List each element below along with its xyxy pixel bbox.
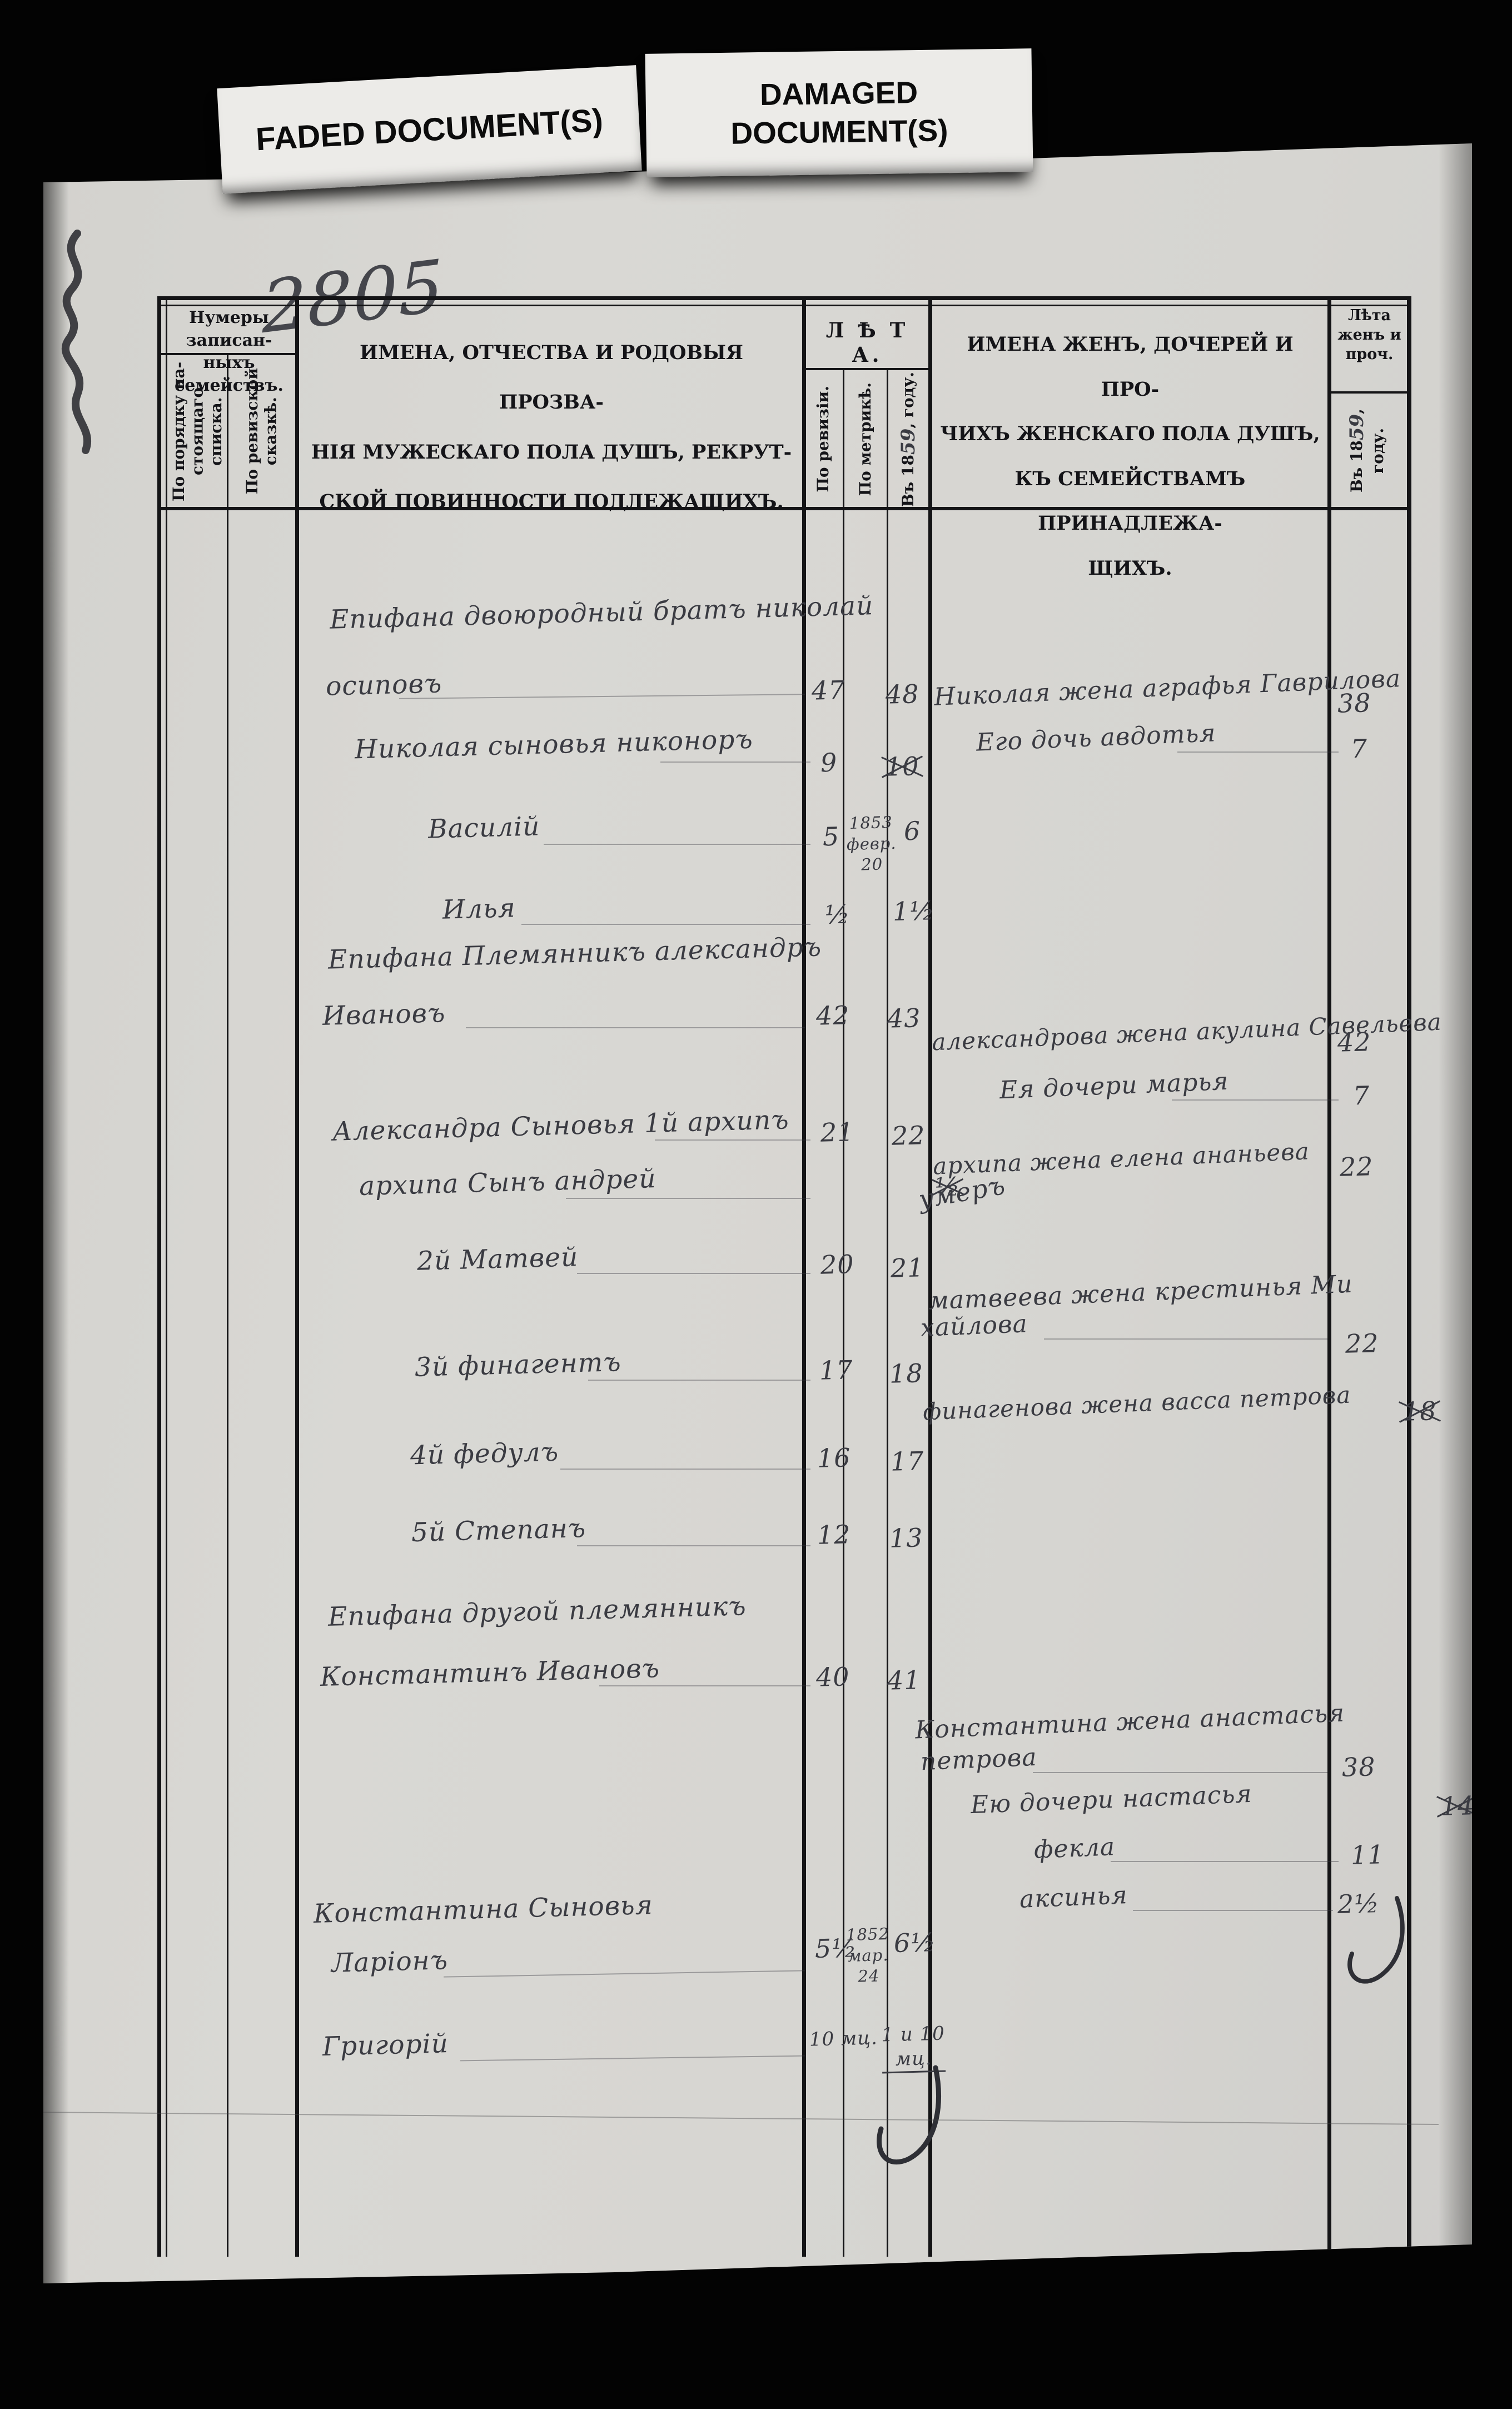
female-entry-name: хайлова xyxy=(920,1310,1028,1342)
female-in-year-handwritten: 59 xyxy=(1346,414,1368,440)
male-entry-name: Василій xyxy=(427,811,540,844)
ink-flourish xyxy=(1344,1895,1411,1995)
male-entry-name: 5й Степанъ xyxy=(411,1513,586,1548)
female-entry-name: фекла xyxy=(1033,1833,1116,1864)
ink-blot-mark xyxy=(47,228,108,467)
scan-background: 2805 Нумеры записан- ныхъ семействъ. По … xyxy=(0,0,1512,2409)
male-entry-name: Епифана двоюродный братъ николай xyxy=(329,590,874,635)
document-page: 2805 Нумеры записан- ныхъ семействъ. По … xyxy=(43,139,1472,2284)
leader-line xyxy=(1111,1861,1339,1862)
age-in-year: 6½ xyxy=(893,1927,936,1958)
female-age: 22 xyxy=(1345,1328,1379,1359)
male-entry-name: архипа Сынъ андрей xyxy=(359,1163,656,1202)
column-line-revision-right xyxy=(843,368,844,2257)
header-male-title: ИМЕНА, ОТЧЕСТВА И РОДОВЫЯ ПРОЗВА- НІЯ МУ… xyxy=(305,328,798,526)
male-entry-name: Николая сыновья никоноръ xyxy=(354,724,753,765)
male-entry-name: Константинъ Ивановъ xyxy=(320,1653,660,1693)
female-age: 38 xyxy=(1337,688,1371,719)
header-by-metrics: По метрикѣ. xyxy=(844,371,887,507)
female-age: 38 xyxy=(1341,1751,1376,1783)
header-by-current-list-label: По порядку на- стоящаго списка. xyxy=(170,356,226,507)
damaged-document-label: DAMAGED DOCUMENT(S) xyxy=(730,73,948,153)
leader-line xyxy=(466,1027,805,1028)
header-female-in-year-label: Въ 1859, году. xyxy=(1346,395,1387,507)
age-in-year: 18 xyxy=(889,1358,923,1389)
leader-line xyxy=(566,1198,810,1199)
male-entry-name: осиповъ xyxy=(325,668,442,701)
leader-line xyxy=(399,694,805,699)
header-female-in-year: Въ 1859, году. xyxy=(1339,395,1394,507)
header-by-current-list: По порядку на- стоящаго списка. xyxy=(168,356,227,507)
leader-line xyxy=(660,761,810,763)
female-age: 11 xyxy=(1350,1839,1385,1870)
female-entry-name: матвеева жена крестинья Ми xyxy=(928,1270,1353,1316)
header-by-revision-tale: По ревизской сказкѣ. xyxy=(228,356,295,507)
header-female-title: ИМЕНА ЖЕНЪ, ДОЧЕРЕЙ И ПРО- ЧИХЪ ЖЕНСКАГО… xyxy=(938,322,1322,591)
leader-line xyxy=(1044,1338,1327,1340)
male-entry-name: 2й Матвей xyxy=(416,1242,579,1277)
leader-line xyxy=(1177,751,1339,753)
age-by-revision: 9 xyxy=(820,748,838,778)
female-age: 42 xyxy=(1337,1027,1371,1058)
age-in-year: 1½ xyxy=(892,895,935,927)
leader-line xyxy=(1033,1772,1327,1773)
age-by-revision: 17 xyxy=(819,1355,853,1386)
age-in-year: 41 xyxy=(887,1665,921,1696)
header-female-years: Лѣта женъ и проч. xyxy=(1330,306,1409,364)
female-entry-name: петрова xyxy=(920,1743,1037,1776)
damaged-document-slip: DAMAGED DOCUMENT(S) xyxy=(645,48,1033,177)
in-year-handwritten: 59 xyxy=(897,428,919,454)
age-by-revision: 5 xyxy=(822,822,840,852)
column-line-years-right xyxy=(928,296,932,2257)
age-by-revision: 40 xyxy=(815,1661,850,1693)
female-entry-name: финагенова жена васса петрова xyxy=(922,1381,1351,1426)
age-in-year: 21 xyxy=(890,1252,924,1283)
header-years-title: Л Ѣ Т А. xyxy=(806,318,928,367)
in-year-prefix: Въ 18 xyxy=(899,455,917,507)
years-header-split-line xyxy=(802,368,932,370)
male-entry-name: 4й федулъ xyxy=(410,1437,559,1471)
table-top-border-inner xyxy=(157,305,1409,306)
female-entry-name: аксинья xyxy=(1019,1881,1128,1914)
age-in-year: 6 xyxy=(903,816,921,847)
leader-line xyxy=(444,1970,805,1977)
leader-line xyxy=(599,1685,810,1686)
age-by-metric: 1852 мар. 24 xyxy=(846,1924,891,1988)
leader-line xyxy=(577,1545,810,1546)
header-in-year-label: Въ 1859, году. xyxy=(897,372,920,507)
female-entry-name: Ею дочери настасья xyxy=(970,1780,1252,1819)
table-top-border xyxy=(157,296,1409,300)
in-year-suffix: , году. xyxy=(899,372,917,429)
age-by-revision: 42 xyxy=(815,1000,850,1031)
column-line-numbers-right xyxy=(295,296,299,2257)
leader-line xyxy=(655,1139,810,1141)
male-entry-name: Епифана другой племянникъ xyxy=(327,1591,747,1632)
age-by-revision: 12 xyxy=(817,1519,851,1550)
male-entry-name: Илья xyxy=(442,893,516,925)
age-by-revision: 21 xyxy=(820,1117,854,1148)
male-entry-name: Епифана Племянникъ александръ xyxy=(327,932,822,975)
female-years-split-line xyxy=(1327,391,1411,394)
age-in-year: 22 xyxy=(891,1120,926,1151)
table-left-border xyxy=(157,296,161,2257)
female-entry-name: Константина жена анастасья xyxy=(914,1699,1345,1745)
female-age-crossed: 14 xyxy=(1440,1790,1475,1821)
faded-document-label: FADED DOCUMENT(S) xyxy=(255,101,604,158)
leader-line xyxy=(577,1273,810,1274)
male-entry-name: Ивановъ xyxy=(322,998,446,1032)
header-in-year: Въ 1859, году. xyxy=(888,371,928,507)
male-entry-name: Григорій xyxy=(322,2028,449,2062)
age-in-year: 17 xyxy=(890,1446,924,1477)
column-line-names-right xyxy=(802,296,806,2257)
female-age: 7 xyxy=(1350,734,1368,764)
column-line-list-split xyxy=(227,353,228,2257)
age-by-revision: 20 xyxy=(820,1249,854,1280)
table-left-border-inner xyxy=(166,296,167,2257)
male-entry-name: Константина Сыновья xyxy=(313,1890,653,1929)
age-in-year: 43 xyxy=(887,1003,921,1034)
male-entry-name: Ларіонъ xyxy=(331,1945,448,1978)
age-in-year-crossed: 10 xyxy=(885,751,919,782)
age-by-metric: 1853 февр. 20 xyxy=(846,812,897,876)
leader-line xyxy=(1133,1910,1333,1911)
female-age-crossed: 18 xyxy=(1403,1396,1438,1427)
pencil-stray-line xyxy=(38,2112,1439,2125)
age-in-year: 48 xyxy=(885,679,919,710)
page-edge-shadow xyxy=(1439,139,1472,2284)
age-by-revision: ½ xyxy=(824,899,850,929)
leader-line xyxy=(560,1469,810,1470)
male-entry-name: 3й финагентъ xyxy=(414,1347,621,1383)
leader-line xyxy=(460,2055,805,2062)
female-age: 22 xyxy=(1339,1151,1374,1182)
header-by-metrics-label: По метрикѣ. xyxy=(856,382,875,496)
header-by-revision-tale-label: По ревизской сказкѣ. xyxy=(243,368,280,494)
age-in-year: 13 xyxy=(889,1522,923,1554)
male-entry-name: Александра Сыновья 1й архипъ xyxy=(332,1104,789,1147)
header-by-revision: По ревизіи. xyxy=(804,371,843,507)
header-by-revision-label: По ревизіи. xyxy=(814,386,833,492)
leader-line xyxy=(544,844,810,845)
age-by-revision: 47 xyxy=(811,675,845,706)
female-age: 7 xyxy=(1352,1081,1370,1111)
leader-line xyxy=(521,924,810,925)
age-by-revision: 10 мц. xyxy=(809,2025,878,2052)
leader-line xyxy=(588,1380,810,1381)
age-by-revision: 16 xyxy=(817,1442,851,1474)
leader-line xyxy=(1172,1099,1339,1101)
female-in-year-prefix: Въ 18 xyxy=(1347,441,1366,493)
